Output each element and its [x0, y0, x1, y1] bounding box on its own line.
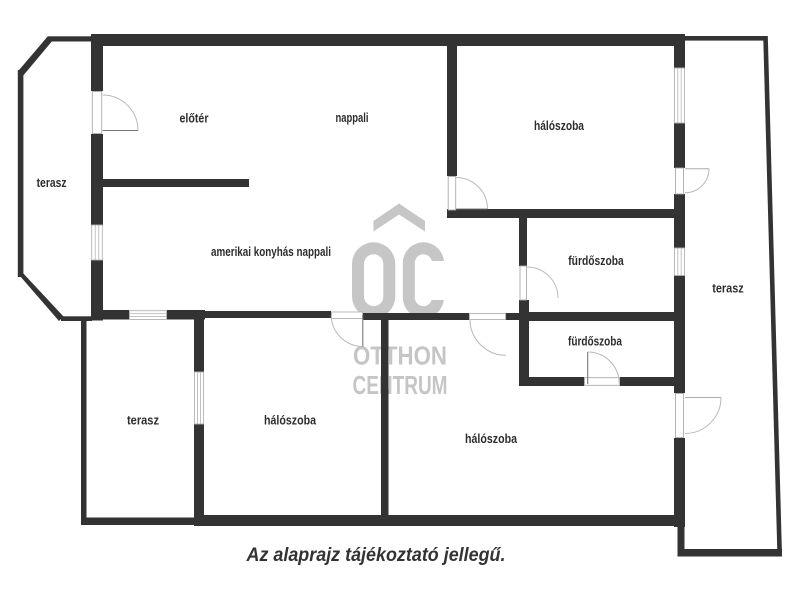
svg-text:fürdőszoba: fürdőszoba: [568, 254, 624, 268]
svg-text:amerikai konyhás nappali: amerikai konyhás nappali: [211, 245, 331, 259]
svg-text:előtér: előtér: [180, 111, 209, 125]
svg-text:OTTHON: OTTHON: [353, 340, 447, 370]
svg-text:fürdőszoba: fürdőszoba: [568, 335, 623, 349]
svg-text:hálószoba: hálószoba: [534, 119, 585, 133]
svg-text:terasz: terasz: [37, 176, 67, 190]
svg-text:nappali: nappali: [336, 111, 369, 125]
svg-text:hálószoba: hálószoba: [465, 432, 518, 446]
svg-text:terasz: terasz: [712, 282, 744, 296]
svg-text:hálószoba: hálószoba: [264, 414, 317, 428]
svg-text:CENTRUM: CENTRUM: [353, 370, 448, 400]
svg-text:Az alaprajz tájékoztató jelleg: Az alaprajz tájékoztató jellegű.: [246, 545, 506, 566]
svg-text:terasz: terasz: [127, 414, 159, 428]
